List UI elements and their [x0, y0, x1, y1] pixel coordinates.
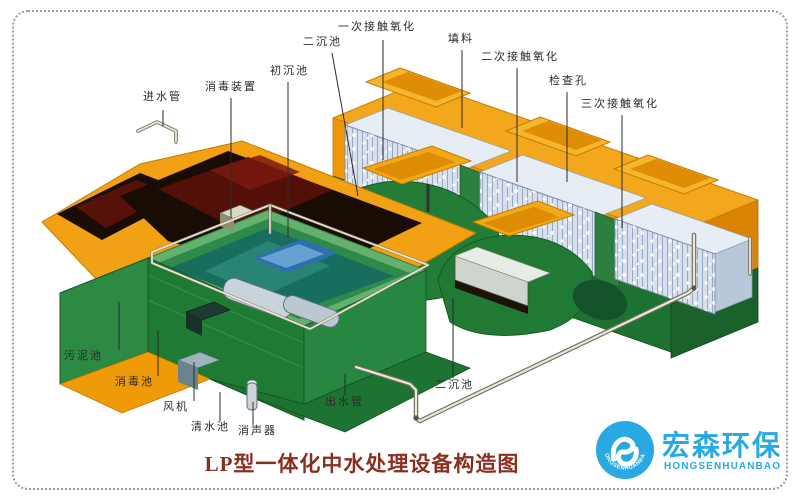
company-name-cn: 宏森环保	[662, 424, 782, 464]
part-label-primary-contact-oxidation: 一次接触氧化	[338, 22, 416, 33]
page: 进水管消毒装置初沉池二沉池一次接触氧化填料二次接触氧化检查孔三次接触氧化污泥池消…	[0, 0, 800, 500]
part-label-disinfection-device: 消毒装置	[205, 82, 257, 93]
part-label-outlet-pipe: 出水管	[325, 397, 364, 408]
company-logo: HONGSENHUANBAO 宏森环保 HONGSENHUANBAO	[594, 419, 794, 491]
company-name-en: HONGSENHUANBAO	[664, 461, 781, 472]
part-label-primary-settling-tank: 初沉池	[270, 66, 309, 77]
part-label-tertiary-contact-oxidation: 三次接触氧化	[581, 99, 659, 110]
diagram-title: LP型一体化中水处理设备构造图	[162, 448, 562, 478]
part-label-clean-water-tank: 清水池	[191, 422, 230, 433]
part-label-inspection-hole: 检查孔	[549, 76, 588, 87]
part-label-muffler: 消声器	[238, 426, 277, 437]
part-label-secondary-contact-oxidation: 二次接触氧化	[481, 52, 559, 63]
part-label-inlet-pipe: 进水管	[143, 92, 182, 103]
part-label-secondary-settling-tank-top: 二沉池	[303, 37, 342, 48]
part-label-secondary-settling-tank-bottom: 二沉池	[435, 380, 474, 391]
part-label-disinfection-tank: 消毒池	[115, 377, 154, 388]
logo-mark-icon: HONGSENHUANBAO	[594, 419, 656, 481]
part-label-packing: 填料	[448, 34, 474, 45]
part-label-blower: 风机	[163, 402, 189, 413]
part-label-sludge-tank: 污泥池	[64, 351, 103, 362]
